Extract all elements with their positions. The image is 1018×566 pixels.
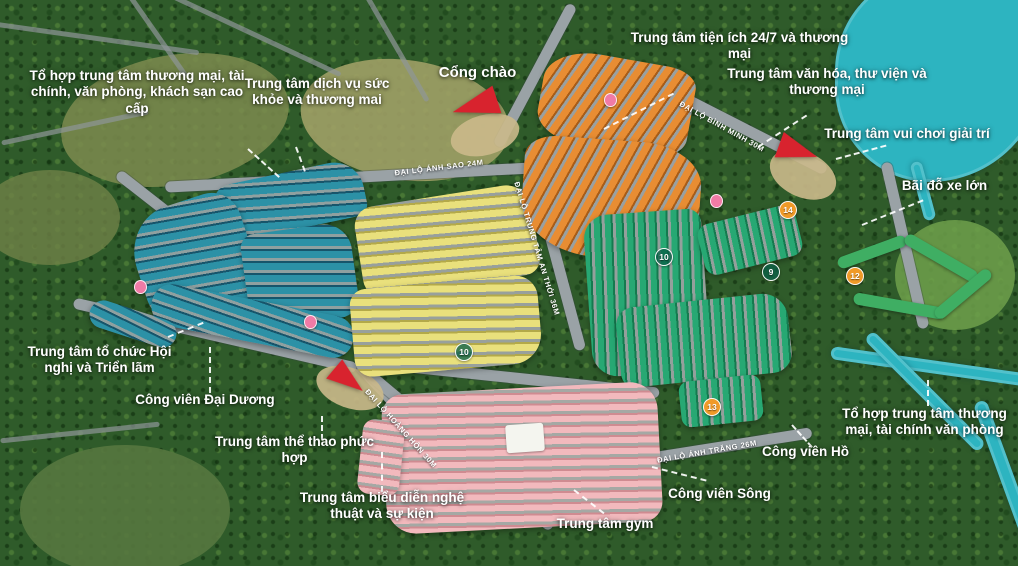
- callout-culture: Trung tâm văn hóa, thư viện và thương mạ…: [722, 66, 932, 99]
- zone-yellow-villas: [349, 274, 544, 378]
- clubhouse: [505, 423, 545, 454]
- zone-badge-10-center: 10: [455, 343, 473, 361]
- balloon-marker: [710, 194, 723, 208]
- balloon-marker: [604, 93, 617, 107]
- zone-green-townhouses: [614, 291, 793, 389]
- callout-lake-park: Công viên Hồ: [758, 444, 853, 460]
- leader-line: [209, 347, 211, 393]
- callout-river-park: Công viên Sông: [662, 486, 777, 502]
- callout-se-complex: Tổ hợp trung tâm thương mại, tài chính v…: [842, 406, 1007, 439]
- open-land-patch: [0, 170, 120, 265]
- callout-utility: Trung tâm tiện ích 24/7 và thương mại: [622, 30, 857, 63]
- zone-green-park-blocks: [678, 374, 764, 428]
- callout-conference: Trung tâm tổ chức Hội nghị và Triển lãm: [12, 344, 187, 377]
- zone-badge-14: 14: [779, 201, 797, 219]
- callout-parking: Bãi đỗ xe lớn: [872, 178, 1017, 194]
- callout-entertainment: Trung tâm vui chơi giải trí: [812, 126, 1002, 142]
- open-land-patch: [20, 445, 230, 566]
- leader-line: [247, 148, 280, 178]
- master-plan-map: 10 10 9 12 13 14 ĐẠI LỘ ÁNH SAO 24M ĐẠI …: [0, 0, 1018, 566]
- leader-line: [927, 380, 929, 406]
- callout-gate: Cổng chào: [420, 64, 535, 82]
- zone-badge-10-orange: 10: [655, 248, 673, 266]
- zone-badge-12: 12: [846, 267, 864, 285]
- callout-gym: Trung tâm gym: [550, 516, 660, 532]
- callout-health: Trung tâm dịch vụ sức khỏe và thương mai: [238, 76, 396, 109]
- zone-badge-9: 9: [762, 263, 780, 281]
- callout-nw-complex: Tổ hợp trung tâm thương mại, tài chính, …: [28, 68, 246, 117]
- rural-road: [0, 422, 160, 444]
- callout-arts: Trung tâm biểu diễn nghệ thuật và sự kiệ…: [292, 490, 472, 523]
- balloon-marker: [134, 280, 147, 294]
- balloon-marker: [304, 315, 317, 329]
- zone-badge-13: 13: [703, 398, 721, 416]
- callout-ocean-park: Công viên Đại Dương: [115, 392, 295, 408]
- leader-line: [381, 452, 383, 492]
- callout-sports: Trung tâm thể thao phức hợp: [212, 434, 377, 467]
